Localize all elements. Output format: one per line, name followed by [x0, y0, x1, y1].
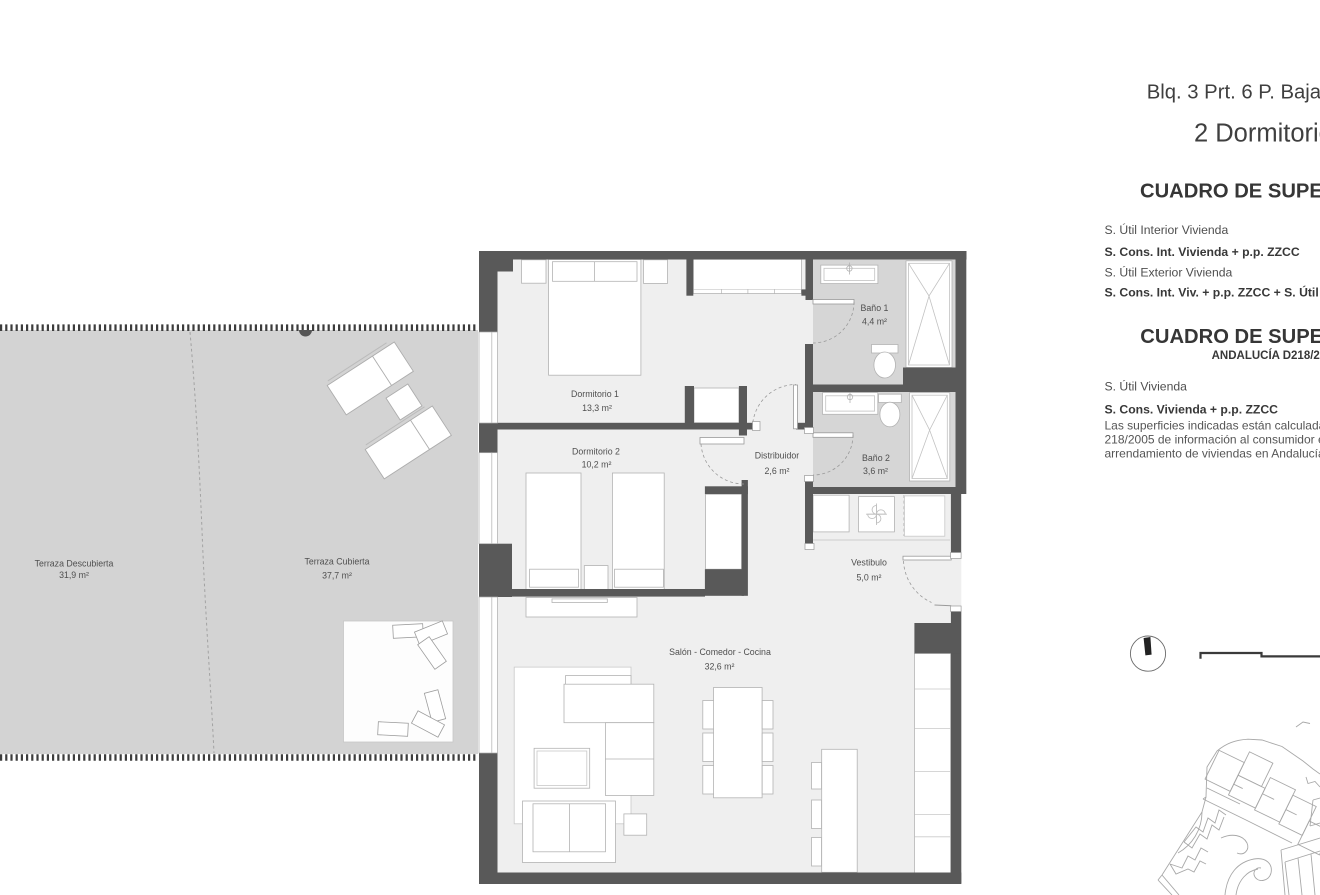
- svg-text:S. Útil Vivienda: S. Útil Vivienda: [1105, 378, 1188, 393]
- svg-text:218/2005 de información al con: 218/2005 de información al consumidor en…: [1105, 433, 1320, 447]
- svg-text:2,6 m²: 2,6 m²: [765, 466, 790, 476]
- svg-text:Terraza Descubierta: Terraza Descubierta: [35, 559, 114, 569]
- svg-text:Dormitorio 1: Dormitorio 1: [571, 389, 619, 399]
- svg-text:Baño 1: Baño 1: [861, 303, 889, 313]
- svg-text:ANDALUCÍA D218/2005: ANDALUCÍA D218/2005: [1212, 349, 1320, 362]
- svg-text:S. Útil Exterior Vivienda: S. Útil Exterior Vivienda: [1105, 265, 1233, 280]
- svg-text:Salón - Comedor - Cocina: Salón - Comedor - Cocina: [669, 647, 771, 657]
- svg-text:Dormitorio 2: Dormitorio 2: [572, 447, 620, 457]
- svg-text:4,4 m²: 4,4 m²: [862, 317, 887, 327]
- svg-text:S. Cons. Int. Vivienda + p.p.: S. Cons. Int. Vivienda + p.p. ZZCC: [1105, 245, 1300, 259]
- svg-text:CUADRO DE SUPERFICIES: CUADRO DE SUPERFICIES: [1140, 181, 1320, 203]
- svg-text:2 Dormitorios: 2 Dormitorios: [1194, 120, 1320, 148]
- svg-text:13,3 m²: 13,3 m²: [582, 403, 612, 413]
- svg-text:S. Útil Interior Vivienda: S. Útil Interior Vivienda: [1105, 222, 1229, 237]
- svg-text:37,7 m²: 37,7 m²: [322, 571, 352, 581]
- svg-text:5,0 m²: 5,0 m²: [857, 573, 882, 583]
- svg-text:CUADRO DE SUPERFICIES: CUADRO DE SUPERFICIES: [1140, 326, 1320, 348]
- svg-text:Vestibulo: Vestibulo: [851, 558, 887, 568]
- svg-text:Terraza Cubierta: Terraza Cubierta: [304, 557, 369, 567]
- svg-text:Las superficies indicadas está: Las superficies indicadas están calculad…: [1105, 419, 1320, 433]
- svg-text:Distribuidor: Distribuidor: [755, 451, 800, 461]
- svg-text:10,2 m²: 10,2 m²: [582, 460, 612, 470]
- svg-text:S. Cons. Int. Viv. + p.p. ZZCC: S. Cons. Int. Viv. + p.p. ZZCC + S. Útil…: [1105, 285, 1320, 300]
- svg-text:Blq. 3 Prt. 6 P. Baja: Blq. 3 Prt. 6 P. Baja: [1147, 82, 1320, 104]
- svg-text:Baño 2: Baño 2: [862, 453, 890, 463]
- svg-text:S. Cons. Vivienda + p.p. ZZCC: S. Cons. Vivienda + p.p. ZZCC: [1105, 403, 1279, 417]
- svg-text:32,6 m²: 32,6 m²: [705, 662, 735, 672]
- svg-text:arrendamiento de viviendas en: arrendamiento de viviendas en Andalucía …: [1105, 447, 1320, 461]
- svg-text:3,6 m²: 3,6 m²: [863, 466, 888, 476]
- svg-text:31,9 m²: 31,9 m²: [59, 570, 89, 580]
